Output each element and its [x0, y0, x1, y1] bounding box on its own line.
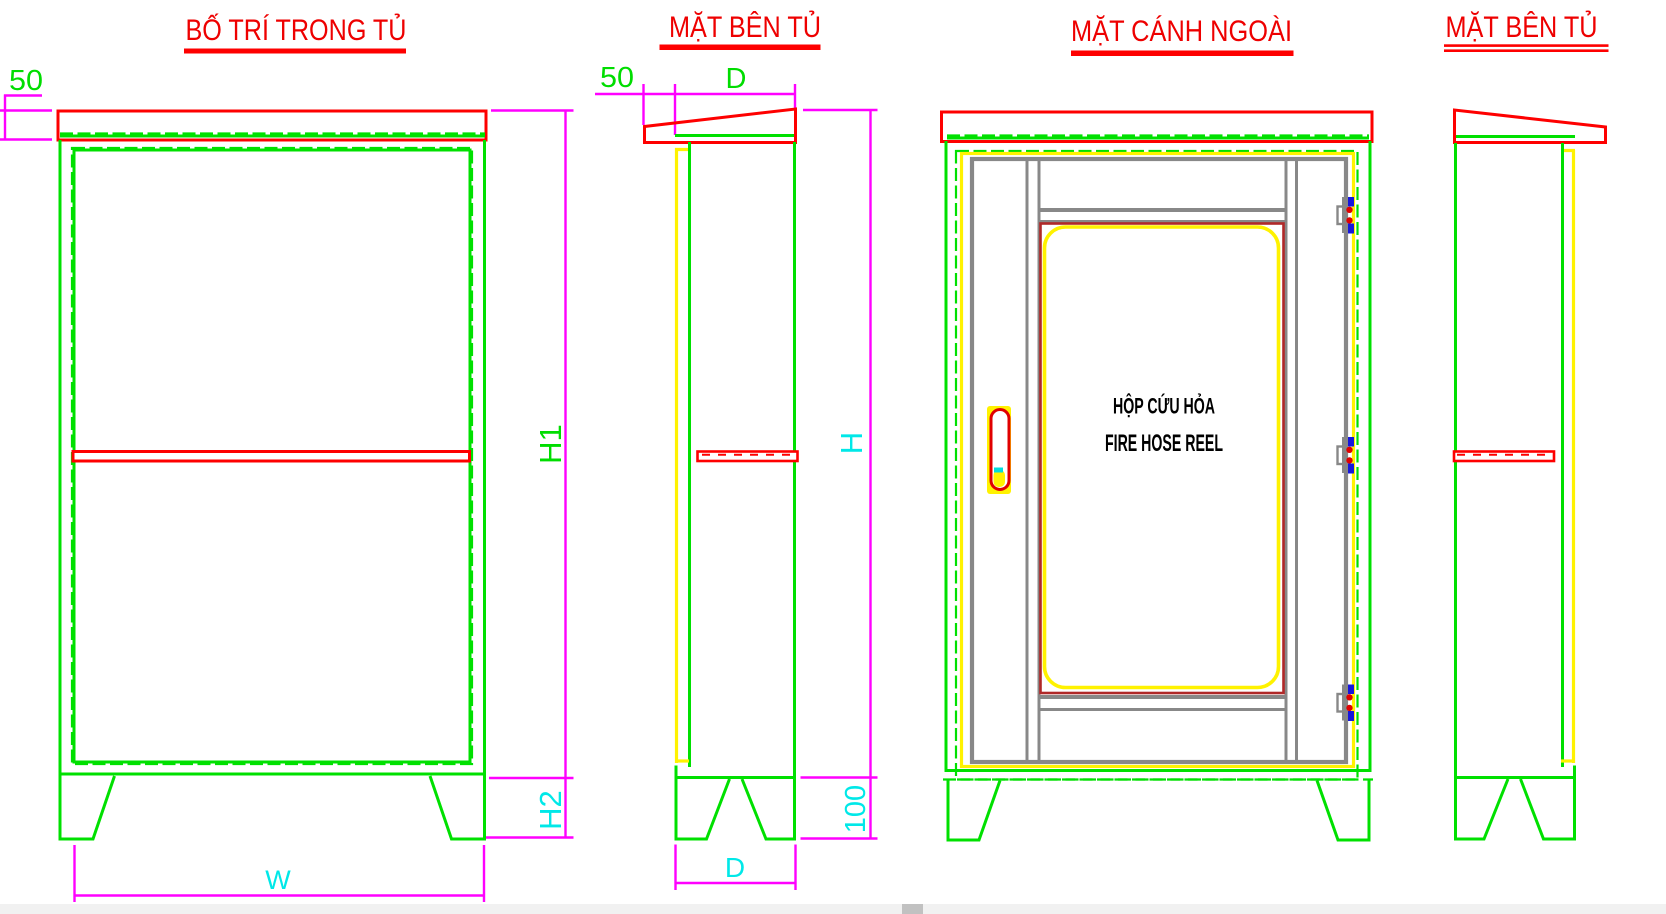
- svg-text:H: H: [834, 432, 869, 454]
- svg-text:HỘP CỨU HỎA: HỘP CỨU HỎA: [1113, 394, 1215, 419]
- svg-text:D: D: [726, 63, 747, 95]
- svg-text:H1: H1: [533, 424, 568, 464]
- svg-text:BỐ TRÍ TRONG TỦ: BỐ TRÍ TRONG TỦ: [186, 13, 407, 47]
- svg-text:50: 50: [600, 62, 634, 94]
- svg-text:MẶT BÊN TỦ: MẶT BÊN TỦ: [1446, 10, 1598, 44]
- svg-text:D: D: [725, 852, 745, 883]
- svg-text:50: 50: [9, 65, 43, 97]
- svg-text:100: 100: [840, 785, 872, 833]
- svg-text:H2: H2: [533, 790, 568, 830]
- svg-text:W: W: [265, 865, 291, 895]
- svg-text:FIRE HOSE REEL: FIRE HOSE REEL: [1105, 430, 1223, 457]
- svg-text:MẶT BÊN TỦ: MẶT BÊN TỦ: [669, 10, 821, 44]
- svg-text:MẶT CÁNH NGOÀI: MẶT CÁNH NGOÀI: [1071, 15, 1292, 48]
